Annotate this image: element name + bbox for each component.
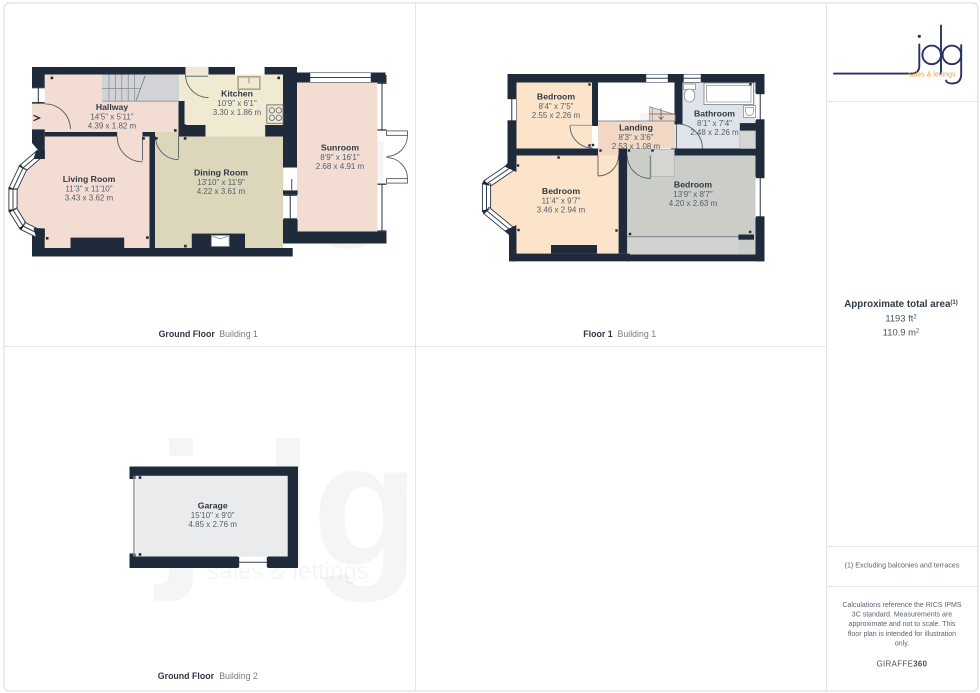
- svg-text:Dining Room: Dining Room: [194, 168, 248, 178]
- svg-text:Bedroom: Bedroom: [537, 92, 575, 102]
- svg-text:4.85 x 2.76 m: 4.85 x 2.76 m: [188, 520, 237, 529]
- svg-text:Calculations reference the RIC: Calculations reference the RICS IPMS: [842, 602, 961, 609]
- svg-text:4.20 x 2.63 m: 4.20 x 2.63 m: [669, 199, 718, 208]
- svg-text:Building 1: Building 1: [219, 329, 258, 339]
- svg-text:approximate and not to scale.: approximate and not to scale. This: [849, 621, 956, 628]
- svg-text:Kitchen: Kitchen: [221, 89, 253, 99]
- svg-text:2.55 x 2.26 m: 2.55 x 2.26 m: [532, 111, 581, 120]
- svg-text:15'10" x 9'0": 15'10" x 9'0": [191, 511, 235, 520]
- svg-text:Building 2: Building 2: [219, 671, 258, 681]
- svg-text:(1) Excluding balconies and te: (1) Excluding balconies and terraces: [845, 562, 960, 570]
- svg-text:Approximate total area(1): Approximate total area(1): [844, 299, 958, 310]
- svg-text:only.: only.: [895, 640, 909, 647]
- svg-text:2.68 x 4.91 m: 2.68 x 4.91 m: [316, 162, 365, 171]
- svg-text:14'5" x 5'11": 14'5" x 5'11": [90, 113, 133, 122]
- svg-text:Ground Floor: Ground Floor: [158, 671, 215, 681]
- svg-text:sales & lettings: sales & lettings: [908, 72, 956, 79]
- svg-text:Landing: Landing: [619, 123, 653, 133]
- svg-text:floor plan is intended for ill: floor plan is intended for illustration: [848, 631, 956, 638]
- svg-text:4.22 x 3.61 m: 4.22 x 3.61 m: [197, 187, 246, 196]
- svg-text:Bedroom: Bedroom: [674, 180, 712, 190]
- svg-text:3.43 x 3.62 m: 3.43 x 3.62 m: [65, 193, 114, 202]
- svg-text:Ground Floor: Ground Floor: [159, 329, 216, 339]
- svg-text:Garage: Garage: [198, 501, 228, 511]
- svg-text:3.30 x 1.86 m: 3.30 x 1.86 m: [213, 108, 262, 117]
- svg-text:Bedroom: Bedroom: [542, 186, 580, 196]
- svg-text:4.39 x 1.82 m: 4.39 x 1.82 m: [88, 121, 137, 130]
- svg-text:11'4" x 9'7": 11'4" x 9'7": [542, 197, 581, 206]
- svg-text:Sunroom: Sunroom: [321, 143, 359, 153]
- svg-text:8'9" x 16'1": 8'9" x 16'1": [320, 153, 360, 162]
- svg-text:Living Room: Living Room: [63, 174, 116, 184]
- svg-text:110.9 m2: 110.9 m2: [883, 327, 920, 338]
- svg-text:13'9" x 8'7": 13'9" x 8'7": [673, 190, 713, 199]
- svg-text:13'10" x 11'9": 13'10" x 11'9": [197, 178, 245, 187]
- svg-text:2.53 x 1.08 m: 2.53 x 1.08 m: [612, 142, 661, 151]
- svg-text:8'1" x 7'4": 8'1" x 7'4": [697, 119, 732, 128]
- svg-text:3C standard. Measurements are: 3C standard. Measurements are: [852, 612, 952, 619]
- svg-text:11'3" x 11'10": 11'3" x 11'10": [65, 185, 112, 194]
- svg-text:Floor 1: Floor 1: [583, 329, 612, 339]
- svg-text:Building 1: Building 1: [618, 329, 657, 339]
- svg-text:GIRAFFE360: GIRAFFE360: [877, 660, 928, 669]
- svg-text:1193 ft2: 1193 ft2: [885, 313, 917, 324]
- svg-text:3.46 x 2.94 m: 3.46 x 2.94 m: [537, 205, 586, 214]
- svg-text:Bathroom: Bathroom: [694, 109, 735, 119]
- svg-text:10'9" x 6'1": 10'9" x 6'1": [217, 99, 257, 108]
- svg-text:8'3" x 3'6": 8'3" x 3'6": [619, 133, 654, 142]
- svg-text:8'4" x 7'5": 8'4" x 7'5": [539, 102, 574, 111]
- svg-text:2.48 x 2.26 m: 2.48 x 2.26 m: [690, 128, 739, 137]
- svg-text:Hallway: Hallway: [96, 102, 129, 112]
